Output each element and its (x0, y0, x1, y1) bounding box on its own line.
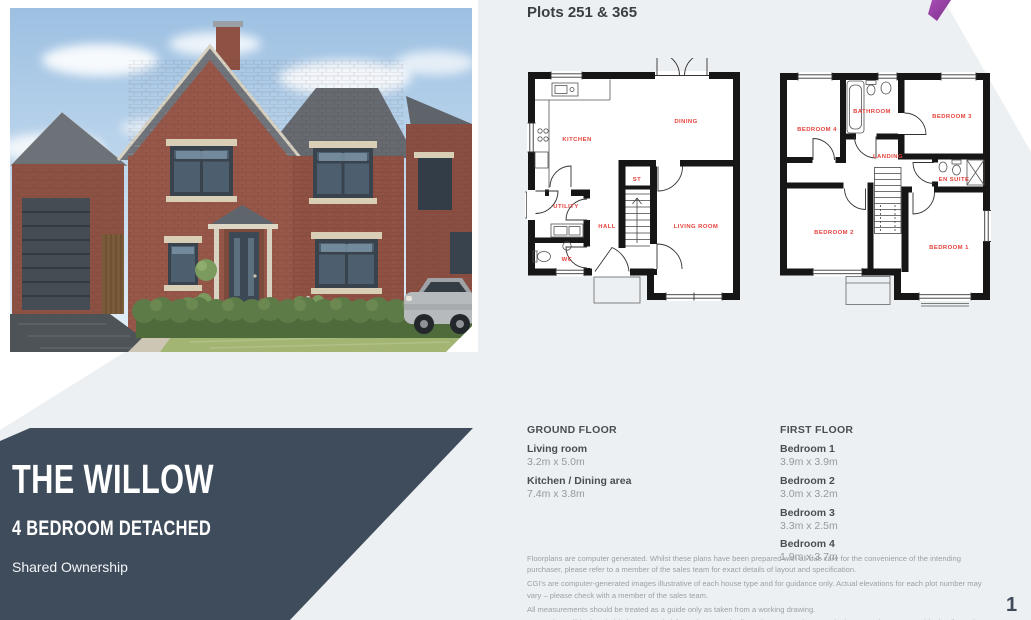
purple-accent-shape (928, 0, 951, 21)
plan-label-bedroom1: BEDROOM 1 (929, 245, 969, 251)
spec-row-living-room: Living room 3.2m x 5.0m (527, 443, 777, 469)
plan-label-bedroom3: BEDROOM 3 (932, 114, 972, 120)
plan-label-hall: HALL (598, 224, 616, 230)
room-name: Living room (527, 443, 777, 456)
plan-label-utility: UTILITY (553, 204, 578, 210)
disclaimer-line: Floorplans are computer generated. Whils… (527, 553, 995, 576)
first-floor-specs: FIRST FLOOR Bedroom 1 3.9m x 3.9m Bedroo… (780, 424, 1030, 570)
title-block: THE WILLOW 4 BEDROOM DETACHED Shared Own… (0, 428, 473, 620)
room-name: Bedroom 3 (780, 507, 1030, 520)
plan-label-bathroom: BATHROOM (853, 109, 891, 115)
upper-left-window (166, 139, 237, 202)
plan-label-landing: LANDING (873, 154, 903, 160)
ground-floor-plan: KITCHEN DINING ST UTILITY HALL WC LIVING… (525, 58, 747, 308)
neighbour-house (406, 96, 472, 296)
room-name: Bedroom 2 (780, 475, 1030, 488)
room-name: Bedroom 4 (780, 538, 1030, 551)
plan-label-living-room: LIVING ROOM (674, 224, 719, 230)
plan-label-bedroom4: BEDROOM 4 (797, 127, 837, 133)
plan-label-bedroom2: BEDROOM 2 (814, 230, 854, 236)
house-photo-illustration (10, 8, 472, 352)
spec-row-bedroom2: Bedroom 2 3.0m x 3.2m (780, 475, 1030, 501)
lower-left-window (164, 236, 202, 291)
page-number: 1 (1006, 594, 1017, 617)
plan-label-dining: DINING (674, 119, 697, 125)
plan-label-wc: WC (562, 257, 573, 263)
disclaimer-line: All measurements should be treated as a … (527, 604, 995, 615)
room-dimensions: 3.9m x 3.9m (780, 456, 1030, 469)
room-dimensions: 3.2m x 5.0m (527, 456, 777, 469)
spec-row-bedroom3: Bedroom 3 3.3m x 2.5m (780, 507, 1030, 533)
room-name: Bedroom 1 (780, 443, 1030, 456)
first-floor-heading: FIRST FLOOR (780, 424, 1030, 436)
brochure-page: Plots 251 & 365 (0, 0, 1031, 620)
spec-row-bedroom1: Bedroom 1 3.9m x 3.9m (780, 443, 1030, 469)
lower-right-window (311, 232, 382, 294)
disclaimer-line: CGI's are computer-generated images illu… (527, 578, 995, 601)
room-dimensions: 3.3m x 2.5m (780, 520, 1030, 533)
plan-label-ensuite: EN SUITE (939, 177, 970, 183)
plots-title: Plots 251 & 365 (527, 4, 637, 21)
house-type-subtitle: 4 BEDROOM DETACHED (12, 517, 211, 541)
main-house (118, 21, 416, 334)
tenure-label: Shared Ownership (12, 559, 128, 575)
upper-right-window (309, 141, 377, 204)
shrub-ball (195, 259, 217, 281)
house-type-name: THE WILLOW (12, 456, 214, 503)
ground-floor-heading: GROUND FLOOR (527, 424, 777, 436)
ground-floor-specs: GROUND FLOOR Living room 3.2m x 5.0m Kit… (527, 424, 777, 507)
disclaimer: Floorplans are computer generated. Whils… (527, 553, 995, 620)
room-name: Kitchen / Dining area (527, 475, 777, 488)
room-dimensions: 7.4m x 3.8m (527, 488, 777, 501)
spec-row-kitchen-dining: Kitchen / Dining area 7.4m x 3.8m (527, 475, 777, 501)
room-dimensions: 3.0m x 3.2m (780, 488, 1030, 501)
first-floor-plan: BEDROOM 4 BATHROOM BEDROOM 3 LANDING EN … (775, 58, 997, 310)
background-white-wedge (0, 352, 125, 430)
house-photo (10, 8, 472, 352)
plan-label-st: ST (633, 177, 641, 183)
plan-label-kitchen: KITCHEN (562, 137, 591, 143)
